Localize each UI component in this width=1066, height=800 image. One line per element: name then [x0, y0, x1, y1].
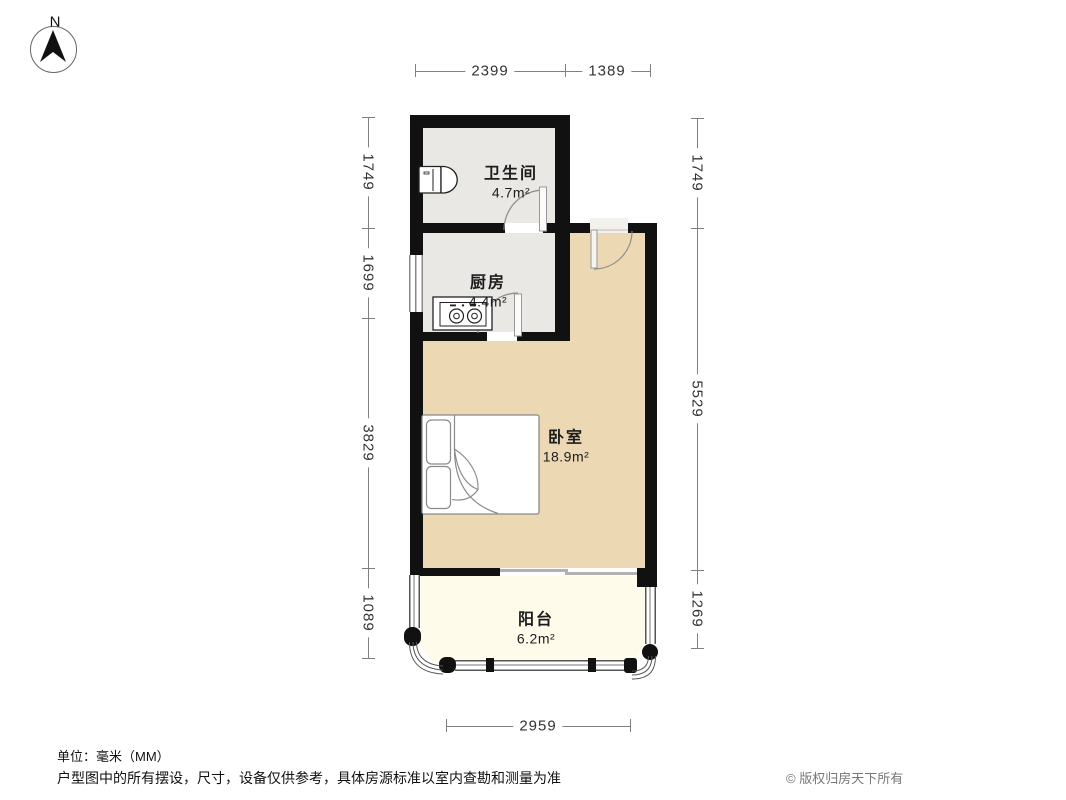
wall-bathroom-bottom-right — [543, 223, 570, 233]
copyright: © 版权归房天下所有 — [786, 768, 903, 787]
wall-top — [410, 115, 570, 128]
dim-tick — [650, 64, 651, 77]
balcony-rail-end-left — [439, 657, 456, 673]
wall-left-lower — [410, 312, 423, 575]
dim-tick — [362, 117, 375, 118]
dim-bottom-1: 2959 — [513, 718, 562, 735]
balcony-railing-left — [409, 575, 420, 628]
room-area: 6.2m² — [517, 631, 555, 647]
dim-tick — [362, 568, 375, 569]
dim-tick — [446, 719, 447, 732]
wall-kitchen-bottom-right — [517, 332, 570, 341]
wall-kitchen-bottom-left — [410, 332, 487, 341]
room-name: 阳台 — [517, 611, 555, 629]
balcony-railing-right — [645, 587, 656, 644]
dim-tick — [691, 228, 704, 229]
disclaimer: 户型图中的所有摆设，尺寸，设备仅供参考，具体房源标准以室内查勘和测量为准 — [57, 768, 561, 788]
dim-left-4: 1089 — [360, 588, 377, 637]
floor-plan-page: N — [0, 0, 1066, 800]
dim-tick — [691, 570, 704, 571]
dim-right-3: 1269 — [689, 584, 706, 633]
dim-left-3: 3829 — [360, 418, 377, 467]
room-label-bathroom: 卫生间 4.7m² — [484, 165, 538, 200]
entrance-threshold — [590, 218, 628, 233]
dim-line-left — [368, 117, 369, 658]
unit-note: 单位：毫米（MM） — [57, 746, 170, 765]
kitchen-door-gap — [487, 332, 517, 341]
kitchen-window — [409, 255, 423, 312]
dim-tick — [565, 64, 566, 77]
room-area: 4.4m² — [469, 294, 507, 310]
room-name: 厨房 — [469, 274, 507, 292]
dim-right-2: 5529 — [689, 374, 706, 423]
wall-bedroom-right — [645, 223, 657, 587]
room-label-balcony: 阳台 6.2m² — [517, 611, 555, 646]
dim-left-1: 1749 — [360, 147, 377, 196]
north-label: N — [50, 14, 61, 31]
room-label-kitchen: 厨房 4.4m² — [469, 274, 507, 309]
bedroom-floor-upper — [570, 233, 645, 568]
balcony-rail-end-right — [624, 658, 637, 673]
balcony-sliding-door-panel-2 — [565, 572, 637, 575]
balcony-sliding-door-panel-1 — [500, 569, 568, 572]
dim-top-1: 2399 — [465, 63, 514, 80]
wall-balcony-top — [410, 568, 500, 576]
dim-tick — [630, 719, 631, 732]
dim-tick — [362, 658, 375, 659]
dim-top-2: 1389 — [582, 63, 631, 80]
dim-tick — [362, 318, 375, 319]
compass: N — [25, 8, 87, 78]
bathroom-door-gap — [505, 223, 543, 233]
wall-bathroom-bottom-left — [410, 223, 505, 233]
dim-left-2: 1699 — [360, 248, 377, 297]
room-area: 4.7m² — [484, 185, 538, 201]
balcony-rail-post-1 — [486, 658, 494, 672]
room-name: 卧室 — [543, 429, 590, 447]
balcony-post-left — [404, 627, 421, 646]
room-label-bedroom: 卧室 18.9m² — [543, 429, 590, 464]
wall-balcony-top-corner — [637, 568, 657, 587]
dim-tick — [691, 648, 704, 649]
balcony-post-right — [642, 644, 658, 660]
dim-tick — [362, 228, 375, 229]
balcony-rail-post-2 — [588, 658, 596, 672]
dim-tick — [415, 64, 416, 77]
room-name: 卫生间 — [484, 165, 538, 183]
room-area: 18.9m² — [543, 449, 590, 465]
wall-left-upper — [410, 115, 423, 255]
balcony-railing-bottom — [455, 660, 627, 671]
dim-right-1: 1749 — [689, 148, 706, 197]
dim-tick — [691, 118, 704, 119]
wall-bedroom-top-left — [570, 223, 592, 233]
